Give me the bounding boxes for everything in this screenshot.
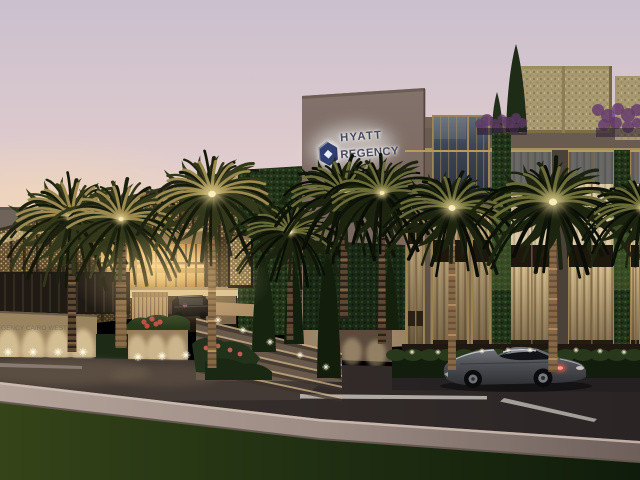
svg-text:REGENCY CAIRO WEST: REGENCY CAIRO WEST	[0, 325, 67, 332]
